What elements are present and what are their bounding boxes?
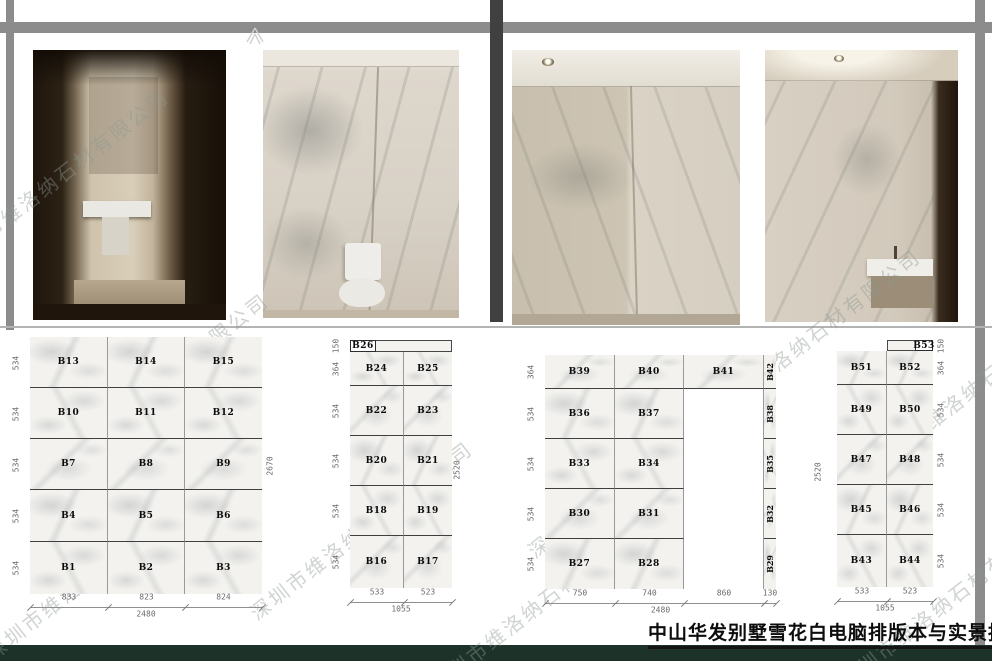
slab-cell: B23 [404, 386, 452, 436]
dimension-tick [449, 599, 456, 606]
slab-cell: B2 [108, 542, 185, 594]
dimension-label: 364 [937, 361, 946, 375]
slab-label: B25 [417, 364, 439, 374]
slab-label: B39 [569, 367, 591, 377]
dimension-label: 130 [763, 589, 777, 598]
dimension-label: 533 [855, 587, 869, 596]
dimension-label: 534 [527, 457, 536, 471]
slab-cell: B36 [545, 389, 615, 439]
slab-cell: B27 [545, 539, 615, 589]
toilet-bowl [339, 278, 384, 307]
downlight-icon [542, 58, 554, 66]
door-opening [684, 439, 764, 489]
slab-label: B11 [135, 408, 157, 418]
dimension-label: 534 [332, 454, 341, 468]
slab-label: B29 [765, 555, 775, 573]
slab-cell: B49 [837, 385, 887, 435]
dimension-label: 534 [332, 555, 341, 569]
dimension-label: 750 [573, 589, 587, 598]
slab-label: B48 [899, 455, 921, 465]
dimension-label: 534 [937, 403, 946, 417]
slab-cell: B3 [185, 542, 262, 594]
dimension-label: 2520 [453, 460, 462, 479]
dimension-label: 534 [332, 504, 341, 518]
slab-label: B13 [58, 357, 80, 367]
sink-pedestal [102, 217, 129, 255]
middle-frame-bar [490, 0, 503, 322]
slab-cell: B29 [764, 539, 776, 589]
slab-label: B18 [366, 506, 388, 516]
slab-cell: B14 [108, 337, 185, 388]
slab-cell: B42 [764, 355, 776, 389]
slab-label: B12 [213, 408, 235, 418]
photo-1 [33, 50, 226, 320]
slab-label: B53 [913, 341, 935, 351]
slab-cell: B51 [837, 351, 887, 385]
slab-cell: B11 [108, 388, 185, 439]
slab-cell: B39 [545, 355, 615, 389]
slab-label: B1 [61, 563, 76, 573]
slab-label: B44 [899, 556, 921, 566]
toilet-tank [345, 243, 380, 281]
dimension-label: 364 [527, 365, 536, 379]
slab-cell: B17 [404, 536, 452, 588]
slab-strip-label-box: B53 [915, 340, 933, 351]
slab-label: B52 [899, 363, 921, 373]
dimension-label: 1055 [391, 605, 410, 614]
slab-cell: B5 [108, 490, 185, 542]
section-divider-line [0, 326, 992, 328]
slab-label: B19 [417, 506, 439, 516]
slab-cell: B7 [30, 439, 108, 490]
slab-cell: B44 [887, 535, 933, 587]
slab-label: B24 [366, 364, 388, 374]
dimension-tick [930, 598, 937, 605]
photo-4 [765, 50, 958, 322]
slab-label: B42 [765, 363, 775, 381]
logo-mark-icon [244, 26, 266, 50]
slab-cell: B47 [837, 435, 887, 485]
dimension-label: 533 [370, 588, 384, 597]
slab-cell: B50 [887, 385, 933, 435]
dimension-label: 534 [937, 503, 946, 517]
slab-label: B38 [765, 405, 775, 423]
slab-label: B31 [638, 509, 660, 519]
dimension-label: 534 [12, 406, 21, 420]
slab-cell: B38 [764, 389, 776, 439]
slab-label: B10 [58, 408, 80, 418]
slab-label: B16 [366, 557, 388, 567]
slab-label: B32 [765, 505, 775, 523]
slab-label: B26 [352, 341, 374, 351]
slab-cell: B24 [350, 352, 404, 386]
slab-label: B45 [851, 505, 873, 515]
dimension-label: 523 [903, 587, 917, 596]
dimension-tick [259, 604, 266, 611]
slab-label: B30 [569, 509, 591, 519]
dimension-label: 534 [12, 561, 21, 575]
drawing-sheet: 深圳市维洛纳石材有限公司 深圳市维洛纳石材有限公司 深圳市维洛纳石材有限公司 深… [0, 0, 992, 661]
slab-label: B41 [713, 367, 735, 377]
slab-cell: B9 [185, 439, 262, 490]
floor-strip [74, 280, 186, 304]
slab-cell: B34 [615, 439, 684, 489]
slab-label: B9 [216, 459, 231, 469]
dimension-label: 2480 [651, 606, 670, 615]
slab-cell: B10 [30, 388, 108, 439]
slab-label: B6 [216, 511, 231, 521]
slab-label: B23 [417, 406, 439, 416]
slab-label: B37 [638, 409, 660, 419]
slab-cell: B41 [684, 355, 764, 389]
dimension-line [545, 603, 776, 604]
slab-label: B36 [569, 409, 591, 419]
dimension-label: 534 [332, 404, 341, 418]
dimension-label: 2480 [136, 610, 155, 619]
slab-cell: B21 [404, 436, 452, 486]
dimension-label: 534 [527, 557, 536, 571]
slab-label: B15 [213, 357, 235, 367]
floor-strip [263, 310, 459, 318]
dimension-line [350, 602, 452, 603]
slab-cell: B43 [837, 535, 887, 587]
mirror-shadow [89, 77, 158, 174]
slab-cell: B13 [30, 337, 108, 388]
door-opening [684, 389, 764, 439]
slab-label: B22 [366, 406, 388, 416]
slab-label: B47 [851, 455, 873, 465]
slab-label: B27 [569, 559, 591, 569]
slab-label: B8 [139, 459, 154, 469]
faucet-shape [894, 246, 897, 259]
slab-label: B34 [638, 459, 660, 469]
dimension-label: 1055 [875, 604, 894, 613]
door-opening [684, 489, 764, 539]
slab-label: B2 [139, 563, 154, 573]
slab-label: B7 [61, 459, 76, 469]
slab-cell: B4 [30, 490, 108, 542]
slab-label: B21 [417, 456, 439, 466]
dimension-label: 534 [12, 509, 21, 523]
marble-veins [512, 78, 740, 326]
counter-base [871, 276, 933, 309]
slab-cell: B40 [615, 355, 684, 389]
slab-label: B49 [851, 405, 873, 415]
dimension-label: 823 [139, 593, 153, 602]
slab-label: B43 [851, 556, 873, 566]
slab-label: B14 [135, 357, 157, 367]
ceiling-strip [263, 50, 459, 67]
slab-cell: B48 [887, 435, 933, 485]
slab-label: B20 [366, 456, 388, 466]
counter-top [867, 259, 933, 275]
right-frame-bar [975, 0, 985, 646]
dimension-label: 740 [642, 589, 656, 598]
slab-cell: B28 [615, 539, 684, 589]
dimension-label: 2670 [266, 456, 275, 475]
dimension-label: 833 [62, 593, 76, 602]
slab-cell: B19 [404, 486, 452, 536]
slab-cell: B45 [837, 485, 887, 535]
slab-cell: B8 [108, 439, 185, 490]
dimension-label: 150 [937, 338, 946, 352]
dimension-label: 150 [332, 339, 341, 353]
slab-label: B28 [638, 559, 660, 569]
slab-label: B35 [765, 455, 775, 473]
ceiling-glow [765, 50, 958, 81]
dimension-label: 860 [717, 589, 731, 598]
slab-cell: B16 [350, 536, 404, 588]
slab-cell: B22 [350, 386, 404, 436]
sheet-title: 中山华发别墅雪花白电脑排版本与实景拍摄 [648, 618, 992, 649]
slab-cell: B18 [350, 486, 404, 536]
dimension-label: 824 [216, 593, 230, 602]
dimension-label: 534 [527, 407, 536, 421]
slab-label: B4 [61, 511, 76, 521]
slab-cell: B37 [615, 389, 684, 439]
slab-cell: B52 [887, 351, 933, 385]
slab-cell: B6 [185, 490, 262, 542]
dimension-label: 364 [332, 362, 341, 376]
slab-label: B51 [851, 363, 873, 373]
dimension-label: 534 [12, 355, 21, 369]
door-opening [684, 539, 764, 589]
slab-cell: B46 [887, 485, 933, 535]
photo-3 [512, 50, 740, 325]
dimension-label: 534 [527, 507, 536, 521]
slab-cell: B33 [545, 439, 615, 489]
dimension-tick [773, 600, 780, 607]
slab-label: B17 [417, 557, 439, 567]
floor-strip [512, 314, 740, 325]
left-frame-bar [6, 0, 14, 330]
slab-cell: B1 [30, 542, 108, 594]
slab-cell: B30 [545, 489, 615, 539]
slab-cell: B15 [185, 337, 262, 388]
slab-cell: B31 [615, 489, 684, 539]
slab-cell: B35 [764, 439, 776, 489]
dimension-label: 2520 [814, 462, 823, 481]
slab-label: B5 [139, 511, 154, 521]
slab-cell: B12 [185, 388, 262, 439]
slab-cell: B20 [350, 436, 404, 486]
dimension-label: 534 [937, 453, 946, 467]
dimension-line [30, 607, 262, 608]
slab-strip-label-box: B26 [350, 340, 376, 352]
slab-label: B40 [638, 367, 660, 377]
dimension-label: 523 [421, 588, 435, 597]
sink-shape [83, 201, 151, 217]
ceiling-plane [512, 50, 740, 87]
slab-label: B33 [569, 459, 591, 469]
door-threshold [33, 304, 226, 320]
slab-label: B3 [216, 563, 231, 573]
dimension-label: 534 [937, 554, 946, 568]
dimension-label: 534 [12, 457, 21, 471]
slab-label: B50 [899, 405, 921, 415]
slab-cell: B25 [404, 352, 452, 386]
slab-label: B46 [899, 505, 921, 515]
slab-cell: B32 [764, 489, 776, 539]
photo-2 [263, 50, 459, 318]
